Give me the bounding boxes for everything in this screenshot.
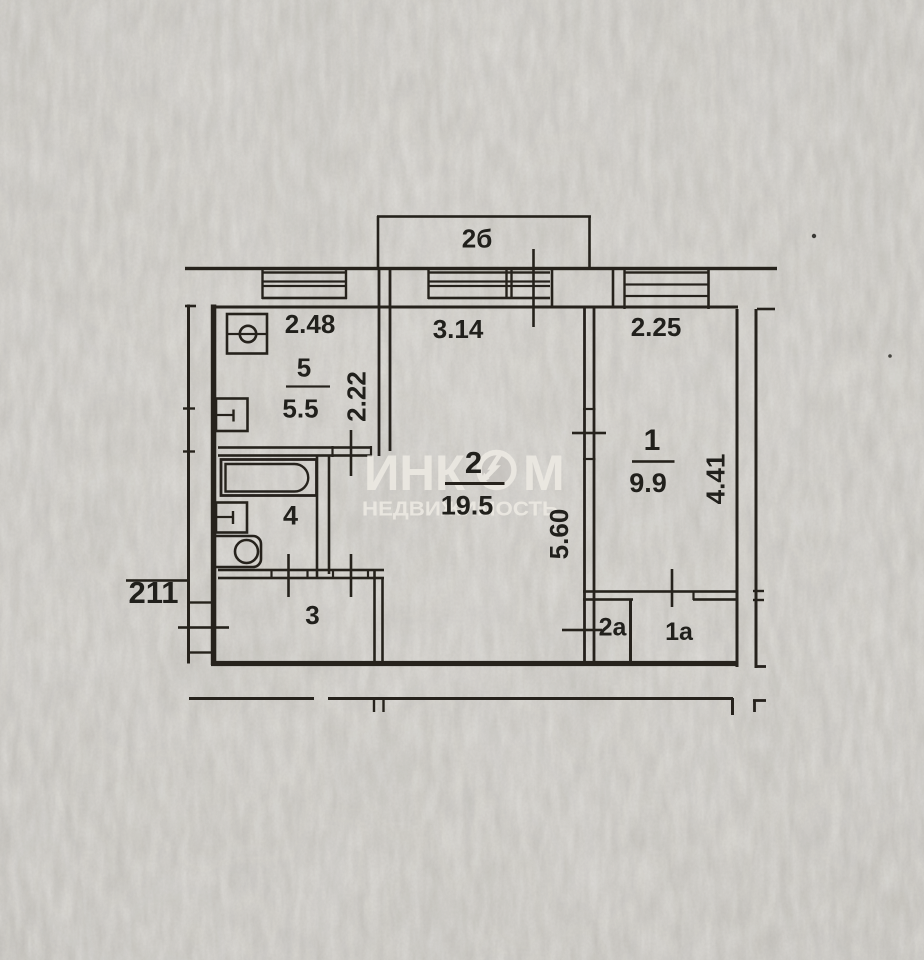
svg-text:5.5: 5.5	[282, 394, 318, 424]
svg-text:2.22: 2.22	[342, 371, 372, 422]
svg-text:2: 2	[465, 445, 482, 480]
svg-text:2.25: 2.25	[631, 312, 682, 342]
svg-text:М: М	[523, 445, 565, 501]
svg-text:1а: 1а	[665, 618, 694, 646]
svg-text:211: 211	[128, 575, 178, 610]
svg-text:9.9: 9.9	[629, 468, 667, 498]
svg-text:2б: 2б	[462, 224, 493, 254]
svg-text:3.14: 3.14	[433, 314, 484, 344]
svg-text:2.48: 2.48	[285, 309, 336, 339]
svg-text:3: 3	[305, 600, 319, 630]
svg-text:4.41: 4.41	[701, 454, 731, 505]
svg-text:4: 4	[283, 501, 298, 531]
svg-text:2а: 2а	[599, 614, 628, 642]
svg-text:5: 5	[297, 353, 311, 383]
svg-text:1: 1	[644, 424, 661, 457]
svg-text:5.60: 5.60	[544, 509, 574, 560]
svg-text:19.5: 19.5	[441, 491, 494, 521]
